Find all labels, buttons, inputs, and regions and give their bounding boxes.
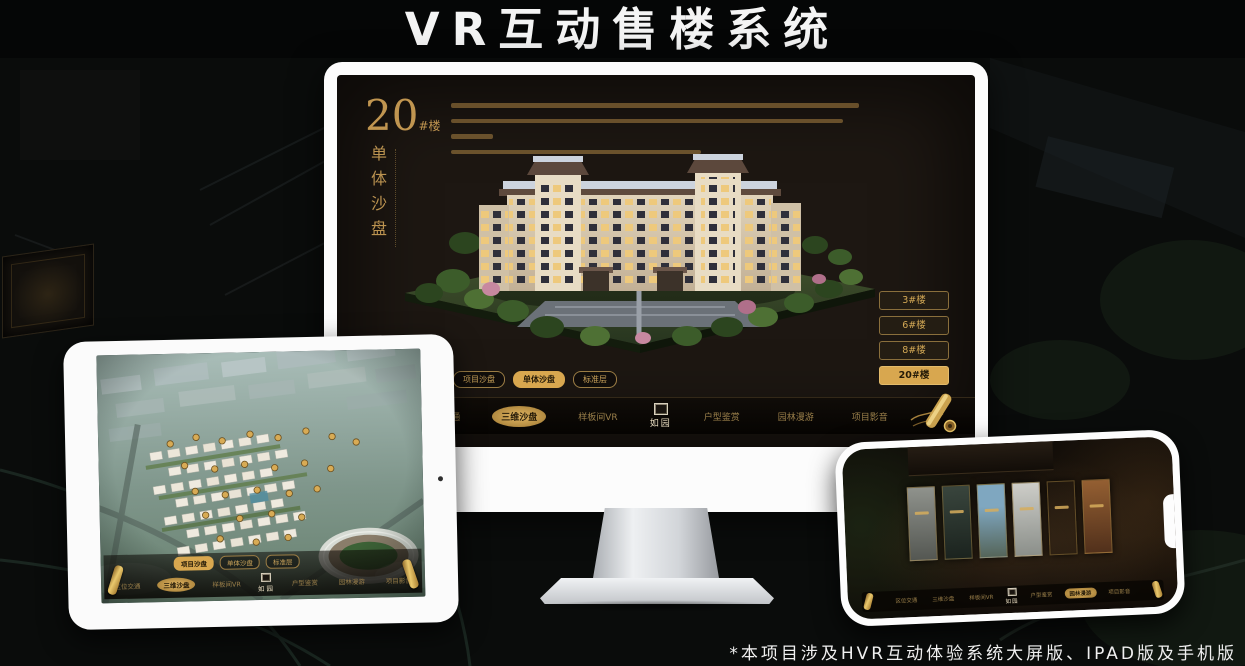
panel-label: [1055, 506, 1069, 510]
menu-item-unit-gallery[interactable]: 户型鉴赏: [698, 408, 746, 425]
seal-icon: [654, 403, 668, 415]
menu-item-unit-gallery[interactable]: 户型鉴赏: [288, 576, 322, 589]
menu-item-location-traffic[interactable]: 区位交通: [892, 595, 920, 606]
menu-item-showroom-vr[interactable]: 样板间VR: [966, 592, 996, 603]
phone-screen: 区位交通 三维沙盘 样板间VR 如园 户型鉴赏 园林漫游 项目影音: [842, 436, 1179, 620]
tab-project-sandbox[interactable]: 项目沙盘: [453, 371, 505, 388]
floor-button-6[interactable]: 6#楼: [879, 316, 949, 335]
menu-item-project-media[interactable]: 项目影音: [1105, 586, 1133, 597]
panel-label: [985, 509, 999, 513]
menu-item-showroom-vr[interactable]: 样板间VR: [208, 577, 245, 590]
monitor-stand: [592, 508, 720, 584]
phone-notch: [1163, 494, 1176, 548]
tablet-device: 项目沙盘 单体沙盘 标准层 区位交通 三维沙盘 样板间VR 如园 户型鉴赏 园林…: [63, 334, 459, 630]
menu-item-project-media[interactable]: 项目影音: [846, 408, 894, 425]
brand-logo-text: 如园: [1005, 596, 1018, 605]
gallery-panel[interactable]: [1012, 482, 1043, 557]
brand-logo: 如园: [650, 403, 672, 429]
brand-logo: 如园: [1005, 587, 1019, 605]
menu-item-unit-gallery[interactable]: 户型鉴赏: [1027, 589, 1055, 600]
phone-device: 区位交通 三维沙盘 样板间VR 如园 户型鉴赏 园林漫游 项目影音: [834, 429, 1185, 627]
tablet-camera: [438, 476, 443, 481]
gallery-panels: [907, 479, 1113, 561]
menu-item-garden-roam[interactable]: 园林漫游: [772, 408, 820, 425]
menu-item-garden-roam[interactable]: 园林漫游: [335, 575, 369, 588]
sandbox-tabs: 项目沙盘 单体沙盘 标准层: [453, 371, 617, 388]
floor-button-3[interactable]: 3#楼: [879, 291, 949, 310]
tablet-screen: 项目沙盘 单体沙盘 标准层 区位交通 三维沙盘 样板间VR 如园 户型鉴赏 园林…: [96, 349, 425, 604]
scroll-icon[interactable]: [909, 390, 961, 436]
gallery-panel[interactable]: [1082, 479, 1113, 554]
gallery-panel[interactable]: [907, 486, 938, 561]
tab-standard-floor[interactable]: 标准层: [573, 371, 617, 388]
gallery-panel[interactable]: [977, 483, 1008, 558]
gallery-panel[interactable]: [1047, 480, 1078, 555]
tablet-menu-bar: 项目沙盘 单体沙盘 标准层 区位交通 三维沙盘 样板间VR 如园 户型鉴赏 园林…: [104, 549, 423, 600]
menu-item-garden-roam[interactable]: 园林漫游: [1064, 587, 1096, 598]
building-3d-model[interactable]: [395, 131, 885, 371]
floor-button-20[interactable]: 20#楼: [879, 366, 949, 385]
brand-logo-text: 如园: [650, 416, 672, 429]
tab-single-building-sandbox[interactable]: 单体沙盘: [513, 371, 565, 388]
page-label-vertical: 单体沙盘: [365, 145, 389, 257]
tab-standard-floor[interactable]: 标准层: [266, 554, 300, 569]
description-line: [451, 103, 859, 108]
tab-single-building-sandbox[interactable]: 单体沙盘: [220, 555, 260, 570]
monitor-shadow: [536, 600, 780, 612]
menu-item-3d-sandbox[interactable]: 三维沙盘: [157, 577, 195, 592]
poster-canvas: VR互动售楼系统 20#楼 单体沙盘: [0, 0, 1245, 666]
panel-label: [915, 512, 929, 516]
phone-menu-bar: 区位交通 三维沙盘 样板间VR 如园 户型鉴赏 园林漫游 项目影音: [862, 580, 1165, 613]
page-title: VR互动售楼系统: [0, 2, 1245, 58]
panel-label: [1020, 507, 1034, 511]
panel-label: [1090, 505, 1104, 509]
floor-button-8[interactable]: 8#楼: [879, 341, 949, 360]
menu-item-showroom-vr[interactable]: 样板间VR: [572, 408, 623, 425]
gallery-panel[interactable]: [942, 485, 973, 560]
brand-logo: 如园: [258, 573, 275, 593]
seal-icon: [261, 573, 271, 582]
background-plaque: [2, 244, 94, 339]
menu-item-3d-sandbox[interactable]: 三维沙盘: [929, 593, 957, 604]
scroll-handle-icon: [863, 592, 874, 610]
brand-logo-text: 如园: [258, 583, 275, 593]
description-line: [451, 119, 843, 124]
tab-project-sandbox[interactable]: 项目沙盘: [174, 556, 214, 571]
footnote-text: *本项目涉及HVR互动体验系统大屏版、IPAD版及手机版: [729, 639, 1237, 664]
panel-label: [950, 510, 964, 514]
gallery-door-frame: [908, 441, 1054, 476]
menu-item-3d-sandbox[interactable]: 三维沙盘: [492, 406, 546, 427]
scroll-handle-icon: [1151, 580, 1163, 598]
seal-icon: [1007, 587, 1016, 595]
floor-selector: 3#楼 6#楼 8#楼 20#楼: [879, 291, 949, 385]
